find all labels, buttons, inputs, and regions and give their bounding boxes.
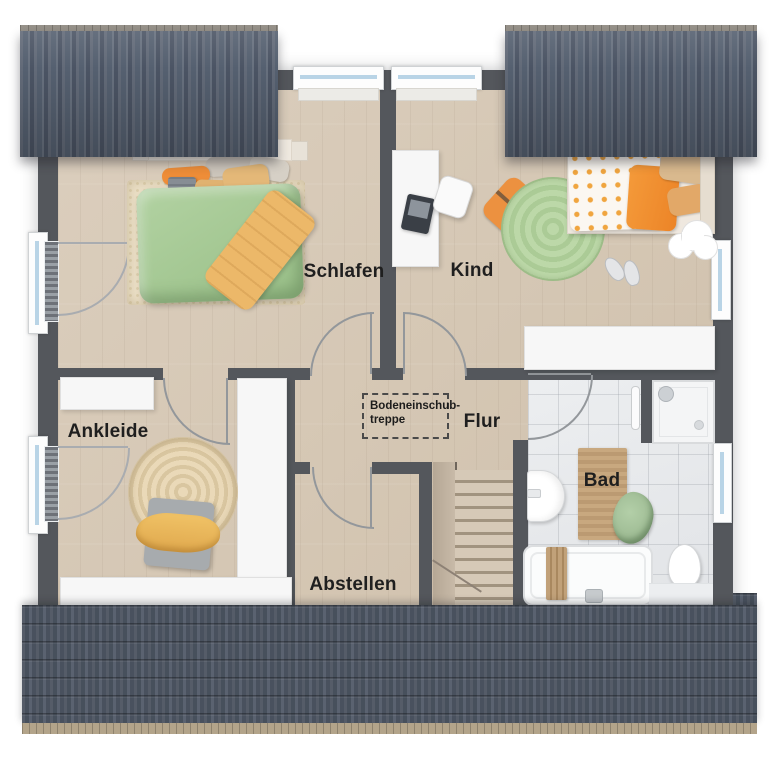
attic-hatch-line1: Bodeneinschub- (370, 399, 447, 413)
room-label-ankleide: Ankleide (68, 421, 149, 443)
wall-abstellen-top-b (372, 462, 420, 474)
radiator-schlafen (44, 241, 59, 322)
bathtub (523, 545, 653, 606)
window-glass (300, 75, 377, 79)
window-sill-kind (396, 88, 477, 101)
wall-abstellen-right (419, 462, 432, 605)
roof-top-left (20, 31, 278, 157)
wardrobe-low (60, 577, 292, 607)
wall-shower-partition (641, 380, 652, 443)
staircase (455, 470, 513, 605)
window-bad-right (713, 443, 732, 523)
shower (652, 380, 715, 444)
cloud-side-table (668, 220, 718, 264)
bathtub-caddy (546, 547, 567, 600)
room-label-abstellen: Abstellen (309, 574, 396, 596)
room-label-schlafen: Schlafen (304, 261, 385, 283)
dresser (60, 377, 154, 410)
door-leaf-kind (403, 312, 405, 374)
toilet-shelf (649, 583, 713, 604)
wardrobe-tall (237, 378, 287, 579)
sideboard (524, 326, 715, 370)
window-glass (35, 445, 39, 525)
room-label-kind: Kind (450, 260, 493, 282)
wall-corridor-c (372, 368, 403, 380)
door-leaf-schlafen (370, 312, 372, 374)
radiator-ankleide (44, 446, 59, 522)
room-label-flur: Flur (464, 411, 501, 433)
shower-head-icon (658, 386, 674, 402)
stair-stringer (433, 462, 457, 605)
wall-abstellen-top-a (295, 462, 310, 474)
nightstand (291, 141, 308, 161)
window-glass (35, 241, 39, 325)
towel-rail (631, 386, 640, 430)
tub-faucet (585, 589, 603, 603)
roof-bottom (22, 605, 757, 724)
roof-gutter (22, 723, 757, 734)
window-glass (398, 75, 475, 79)
window-leaf-schlafen (58, 242, 128, 244)
basin-tap (527, 489, 541, 498)
door-leaf-ankleide (226, 378, 228, 443)
bench (143, 497, 215, 570)
dormer-window-kind (391, 66, 482, 90)
cloud-center (682, 232, 704, 250)
door-leaf-bad (528, 373, 591, 375)
toilet (668, 544, 701, 588)
room-label-bad: Bad (584, 470, 621, 492)
shower-drain (694, 420, 704, 430)
floor-plan: Bodeneinschub- treppe Schlafen Kind Ankl… (0, 0, 775, 763)
door-leaf-abstellen (370, 467, 372, 527)
window-glass (718, 249, 722, 311)
window-leaf-ankleide (58, 446, 128, 448)
dormer-window-schlafen (293, 66, 384, 90)
attic-hatch-annotation: Bodeneinschub- treppe (362, 393, 449, 439)
laptop-screen (408, 199, 431, 219)
window-sill-schlafen (298, 88, 379, 101)
window-glass (720, 452, 724, 514)
bench-cloth-yellow (135, 510, 222, 555)
attic-hatch-line2: treppe (370, 413, 447, 427)
roof-top-right (505, 31, 757, 157)
